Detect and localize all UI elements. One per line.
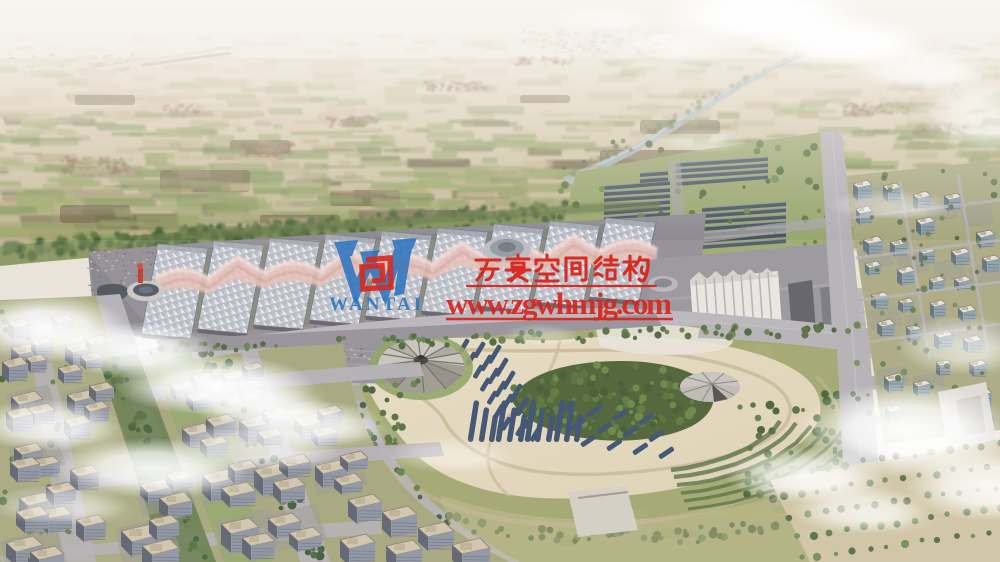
- svg-text:www.zgwhmjg.com: www.zgwhmjg.com: [446, 286, 672, 321]
- svg-text:WANTAI: WANTAI: [329, 294, 421, 315]
